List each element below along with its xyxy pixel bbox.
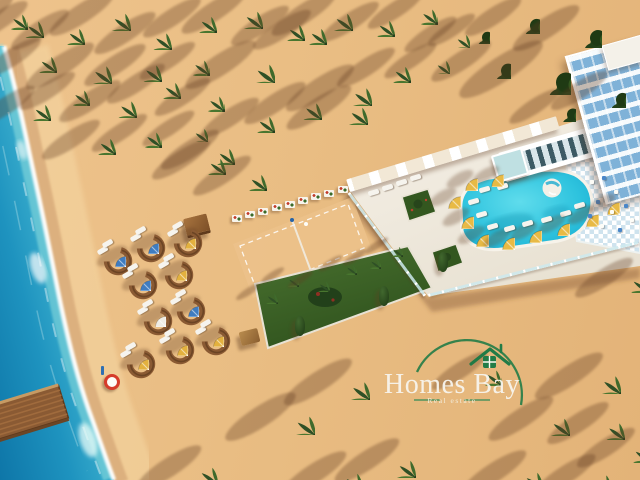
house-icon <box>471 345 509 368</box>
logo-subtitle: Real estate <box>427 396 476 405</box>
resort-aerial-render: Homes Bay Real estate <box>0 0 640 480</box>
homes-bay-logo: Homes Bay Real estate <box>0 0 640 480</box>
